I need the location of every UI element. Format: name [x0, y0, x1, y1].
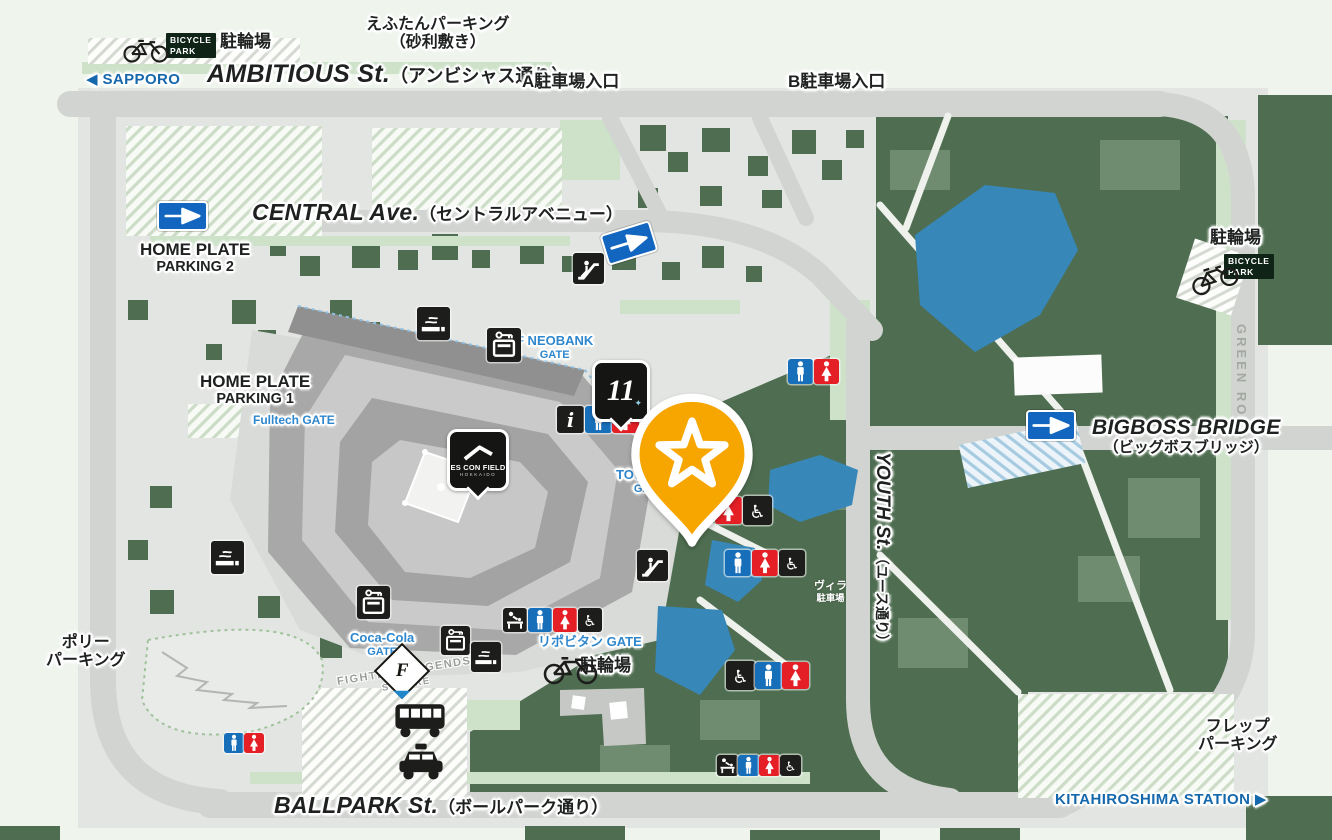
wheelchair-icon: ♿ [726, 661, 755, 690]
youth-st-label: YOUTH St.（ユース通り） [872, 452, 893, 648]
man-icon [528, 608, 552, 632]
bike-icon [541, 650, 603, 686]
smoking-icon [471, 642, 501, 672]
bus-icon [392, 702, 448, 740]
star-location-pin[interactable] [623, 392, 761, 547]
eftan-parking-label: えふたんパーキング（砂利敷き） [366, 16, 510, 52]
oneway-icon [599, 220, 658, 266]
man-icon [725, 550, 751, 576]
polly-parking-label: ポリーパーキング [46, 634, 126, 670]
home-plate-parking-1-label: HOME PLATEPARKING 1 [200, 372, 310, 407]
man-icon [738, 755, 759, 776]
map-overlay: 駐輪場BICYCLEPARKえふたんパーキング（砂利敷き）◀ SAPPOROAM… [0, 0, 1332, 840]
villa-parking-label: ヴィラ駐車場 [814, 580, 847, 603]
svg-text:i: i [567, 409, 574, 432]
locker-icon [357, 586, 390, 619]
escalator-icon [573, 253, 604, 284]
lipovitan-gate-label: リポビタン GATE [538, 635, 642, 650]
wheelchair-icon: ♿ [779, 550, 805, 576]
ambitious-st-label: AMBITIOUS St.（アンビシャス通り） [207, 60, 569, 88]
direction-kitahiroshima: KITAHIROSHIMA STATION ▶ [1055, 792, 1267, 809]
woman-icon [553, 608, 577, 632]
woman-icon [244, 733, 264, 753]
parking-b-entrance-label: B駐車場入口 [788, 72, 885, 91]
woman-icon [782, 662, 809, 689]
bicycle-parking-label-right: 駐輪場 [1210, 228, 1261, 247]
smoking-icon [417, 307, 450, 340]
parking-a-entrance-label: A駐車場入口 [522, 72, 619, 91]
taxi-icon [396, 742, 446, 784]
ballpark-area-map: 駐輪場BICYCLEPARKえふたんパーキング（砂利敷き）◀ SAPPOROAM… [0, 0, 1332, 840]
bigboss-bridge-label: BIGBOSS BRIDGE（ビッグボスブリッジ） [1092, 416, 1281, 456]
man-icon [755, 662, 782, 689]
direction-sapporo: ◀ SAPPORO [86, 72, 180, 89]
escon-field-badge[interactable]: ES CON FIELDHOKKAIDO [447, 429, 509, 491]
svg-text:♿: ♿ [583, 612, 596, 630]
bicycle-parking-label-top-left: 駐輪場 [220, 32, 271, 51]
flep-parking-label: フレップパーキング [1198, 718, 1278, 754]
wheelchair-icon: ♿ [780, 755, 801, 776]
wheelchair-icon: ♿ [578, 608, 602, 632]
central-ave-label: CENTRAL Ave.（セントラルアベニュー） [252, 200, 623, 226]
man-icon [224, 733, 244, 753]
f-neobank-gate-label: F NEOBANKGATE [516, 334, 593, 362]
locker-icon [441, 626, 470, 655]
baby-icon [717, 755, 738, 776]
escalator-icon [637, 550, 668, 581]
woman-icon [752, 550, 778, 576]
oneway-icon [1026, 410, 1076, 441]
smoking-icon [211, 541, 244, 574]
svg-text:♿: ♿ [785, 555, 800, 574]
oneway-icon [157, 201, 208, 231]
bike-icon [1184, 252, 1245, 299]
fulltech-gate-label: Fulltech GATE [253, 414, 335, 428]
woman-icon [759, 755, 780, 776]
woman-icon [814, 359, 839, 384]
svg-text:♿: ♿ [785, 760, 797, 775]
baby-icon [503, 608, 527, 632]
bike-icon [118, 34, 176, 64]
info-icon: i [557, 406, 584, 433]
home-plate-parking-2-label: HOME PLATEPARKING 2 [140, 240, 250, 275]
locker-icon [487, 328, 521, 362]
svg-text:♿: ♿ [732, 667, 748, 688]
ballpark-st-label: BALLPARK St.（ボールパーク通り） [274, 793, 608, 819]
man-icon [788, 359, 813, 384]
